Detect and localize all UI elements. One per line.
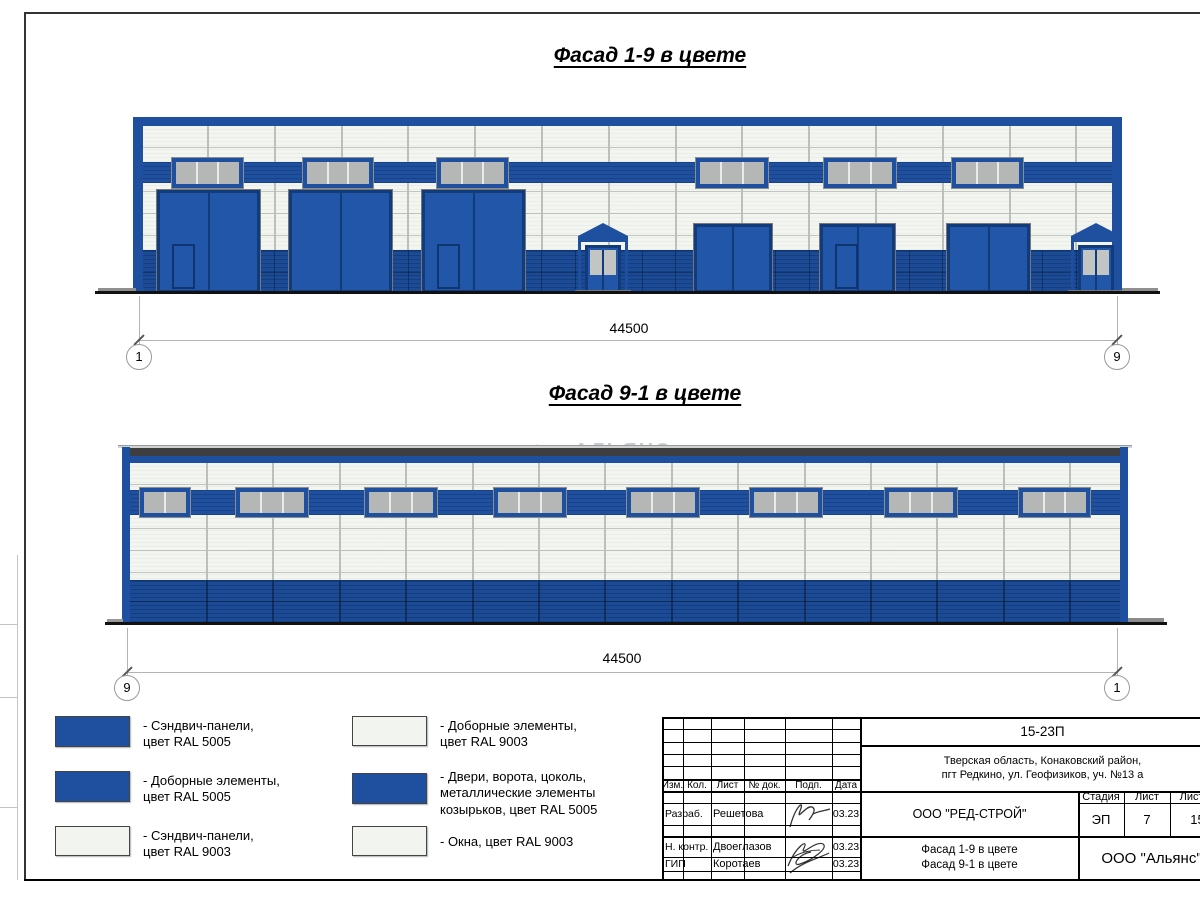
axis-marker-1-left: 1 [126,344,152,370]
row-name-gip: Коротаев [713,857,783,871]
window-pane-divider [282,492,284,513]
sheet-value: 7 [1124,803,1170,836]
panel-seam [808,126,810,250]
window [750,488,822,517]
sheets-value: 15 [1170,803,1200,836]
stamp-line [662,779,860,781]
window-pane-divider [540,492,542,513]
window-pane-divider [518,492,520,513]
facade-1-9-drawing [133,117,1122,293]
base-joint [737,581,739,624]
window-pane-divider [870,162,872,184]
legend-item: - Доборные элементы, цвет RAL 5005 [55,771,345,817]
base-joint [936,581,938,624]
window-pane-divider [347,162,349,184]
window [952,158,1023,188]
base-midline [130,601,1120,602]
window [824,158,896,188]
panel-seam [737,463,739,580]
frame-margin-div2 [0,697,17,698]
panel-seam [671,463,673,580]
entrance-door-divider [1095,250,1097,290]
gate-door [947,224,1030,293]
dimension-value-2: 44500 [542,650,702,666]
row-date-nkontr: 03.23 [832,836,860,857]
legend-swatch-ral5005 [55,716,130,747]
window-pane-divider [1043,492,1045,513]
window [236,488,308,517]
window-pane-divider [909,492,911,513]
base-joint [339,581,341,624]
facade-9-1-drawing [122,445,1128,623]
base-joint [604,581,606,624]
organization-name: ООО "Альянс" [1078,836,1200,880]
entrance-door-divider [602,250,604,290]
base-joint [1069,581,1071,624]
panel-seam [942,126,944,250]
stamp-line [683,717,684,880]
panel-seam [407,126,409,250]
stamp-line [662,791,1200,793]
panel-seam [870,463,872,580]
window [365,488,437,517]
window [172,158,243,188]
gate-door-divider [208,193,210,290]
window-pane-divider [720,162,722,184]
window-pane-divider [217,162,219,184]
legend-item: - Сэндвич-панели, цвет RAL 5005 [55,716,345,762]
panel-seam [604,463,606,580]
window [494,488,566,517]
stage-value: ЭП [1078,803,1124,836]
panel-seam [206,463,208,580]
stamp-line [24,879,1200,881]
stamp-line [662,803,860,804]
dimension-value-1: 44500 [549,320,709,336]
row-name-nkontr: Двоеглазов [713,836,785,857]
window-pane-divider [651,492,653,513]
window-pane-divider [461,162,463,184]
stamp-line [662,717,664,880]
corner-column-left [133,117,143,293]
row-role-razrab: Разраб. [665,803,711,825]
legend-item: - Окна, цвет RAL 9003 [352,826,652,872]
window-pane-divider [796,492,798,513]
stamp-line [662,871,860,872]
legend-label: - Доборные элементы, цвет RAL 5005 [143,773,343,806]
canopy-fascia [1071,236,1121,242]
panel-seam [272,463,274,580]
canopy-post-left [578,242,581,293]
gate-door [694,224,772,293]
row-name-razrab: Решетова [713,803,783,825]
stamp-line [711,717,712,880]
entrance-door [1078,245,1114,293]
frame-left-line [24,12,26,881]
wicket-door [835,244,858,289]
stamp-line [832,717,833,880]
stamp-line [662,754,860,755]
ground-line-2 [105,622,1167,625]
panel-seam [472,463,474,580]
ground-line-1 [95,291,1160,294]
dimension-line-2 [127,672,1118,673]
canopy-post-right [625,242,628,293]
window [885,488,957,517]
legend-label: - Окна, цвет RAL 9003 [440,834,650,850]
stamp-line [860,717,862,880]
sheet-title: Фасад 1-9 в цвете Фасад 9-1 в цвете [861,836,1078,880]
drawing-sheet: Фасад 1-9 в цвете Фасад 9-1 в цвете 4450… [0,0,1200,900]
legend-swatch-ral9003 [55,826,130,856]
stamp-line [662,729,860,730]
panel-seam [804,463,806,580]
panel-seam [538,463,540,580]
window-pane-divider [848,162,850,184]
panel-seam [1003,463,1005,580]
panel-seam [339,463,341,580]
stamp-line [662,766,860,767]
window-pane-divider [1064,492,1066,513]
facade-1-9-title: Фасад 1-9 в цвете [450,44,850,68]
panel-seam [541,126,543,250]
canopy-fascia [578,236,628,242]
canopy-post-left [1071,242,1074,293]
legend-label: - Двери, ворота, цоколь, металлические э… [440,769,660,818]
roof-blue-strip [126,456,1124,463]
panel-seam [1069,463,1071,580]
corner-column-left [122,447,130,623]
stamp-line [1078,803,1200,804]
col-header-podp: Подп. [785,779,832,791]
window-pane-divider [976,162,978,184]
window [303,158,373,188]
gate-door-divider [340,193,342,290]
legend-label: - Сэндвич-панели, цвет RAL 5005 [143,718,343,751]
entrance-porch [578,223,628,293]
frame-margin-line [17,555,18,880]
col-header-kol: Кол. [683,779,711,791]
row-date-gip: 03.23 [832,857,860,871]
axis-marker-1-right: 9 [1104,344,1130,370]
stamp-line [662,825,860,826]
row-role-nkontr: Н. контр. [665,836,715,857]
window [140,488,190,517]
entrance-porch [1071,223,1121,293]
extension-line [1117,628,1118,682]
gate-door-divider [988,227,990,290]
col-header-data: Дата [832,779,860,791]
entrance-door [585,245,621,293]
window-pane-divider [260,492,262,513]
base-joint [405,581,407,624]
window-pane-divider [164,492,166,513]
window-pane-divider [931,492,933,513]
stamp-line [1078,791,1080,880]
panel-seam [274,126,276,250]
window-pane-divider [327,162,329,184]
panel-seam [405,463,407,580]
col-header-doc: № док. [744,779,785,791]
base-joint [1003,581,1005,624]
window [627,488,699,517]
canopy-gable [578,223,628,236]
base-joint [538,581,540,624]
panel-seam [936,463,938,580]
legend-item: - Сэндвич-панели, цвет RAL 9003 [55,826,345,872]
legend-swatch-ral9003 [352,716,427,746]
doc-number: 15-23П [861,717,1200,745]
stamp-line [785,717,786,880]
canopy-gable [1071,223,1121,236]
gate-door [289,190,392,293]
facade-9-1-title: Фасад 9-1 в цвете [445,382,845,406]
row-date-razrab: 03.23 [832,803,860,825]
parapet-band [133,117,1122,126]
base-joint [472,581,474,624]
legend-label: - Сэндвич-панели, цвет RAL 9003 [143,828,343,861]
wicket-door [172,244,195,289]
gate-door [820,224,895,293]
frame-top-line [24,12,1200,14]
base-joint [272,581,274,624]
legend-swatch-ral9003 [352,826,427,856]
frame-margin-div1 [0,624,17,625]
window-pane-divider [673,492,675,513]
stamp-line [662,836,1200,838]
axis-marker-2-left: 9 [114,675,140,701]
window [696,158,768,188]
legend-item: - Доборные элементы, цвет RAL 9003 [352,716,652,762]
corner-column-right [1120,447,1128,623]
window-pane-divider [997,162,999,184]
company-name: ООО "РЕД-СТРОЙ" [861,791,1078,836]
window-pane-divider [742,162,744,184]
window-pane-divider [482,162,484,184]
dimension-line-1 [139,340,1118,341]
legend-swatch-ral5005 [55,771,130,802]
stamp-line [662,717,1200,719]
stamp-line [1124,791,1125,836]
gate-door-divider [732,227,734,290]
window [437,158,508,188]
window-pane-divider [774,492,776,513]
base-joint [870,581,872,624]
extension-line [127,628,128,682]
window-pane-divider [196,162,198,184]
base-joint [804,581,806,624]
panel-seam [675,126,677,250]
canopy-post-right [1118,242,1121,293]
wicket-door [437,244,460,289]
window-pane-divider [411,492,413,513]
legend-label: - Доборные элементы, цвет RAL 9003 [440,718,650,751]
gate-door-divider [473,193,475,290]
panel-field [130,463,1120,580]
base-joint [206,581,208,624]
stamp-line [860,745,1200,747]
stamp-line [662,742,860,743]
row-role-gip: ГИП [665,857,711,871]
base-band [130,580,1120,623]
base-joint [671,581,673,624]
legend-swatch-ral5005 [352,773,427,804]
window [1019,488,1090,517]
axis-marker-2-right: 1 [1104,675,1130,701]
stamp-line [744,717,745,880]
project-address: Тверская область, Конаковский район, пгт… [861,745,1200,791]
stamp-line [662,857,860,858]
col-header-list: Лист [711,779,744,791]
legend-item: - Двери, ворота, цоколь, металлические э… [352,771,652,827]
window-pane-divider [389,492,391,513]
col-header-izm: Изм. [662,779,683,791]
stamp-line [1170,791,1171,836]
gate-door [422,190,525,293]
frame-margin-div3 [0,807,17,808]
roof-dark-strip [126,448,1124,456]
gate-door [157,190,260,293]
